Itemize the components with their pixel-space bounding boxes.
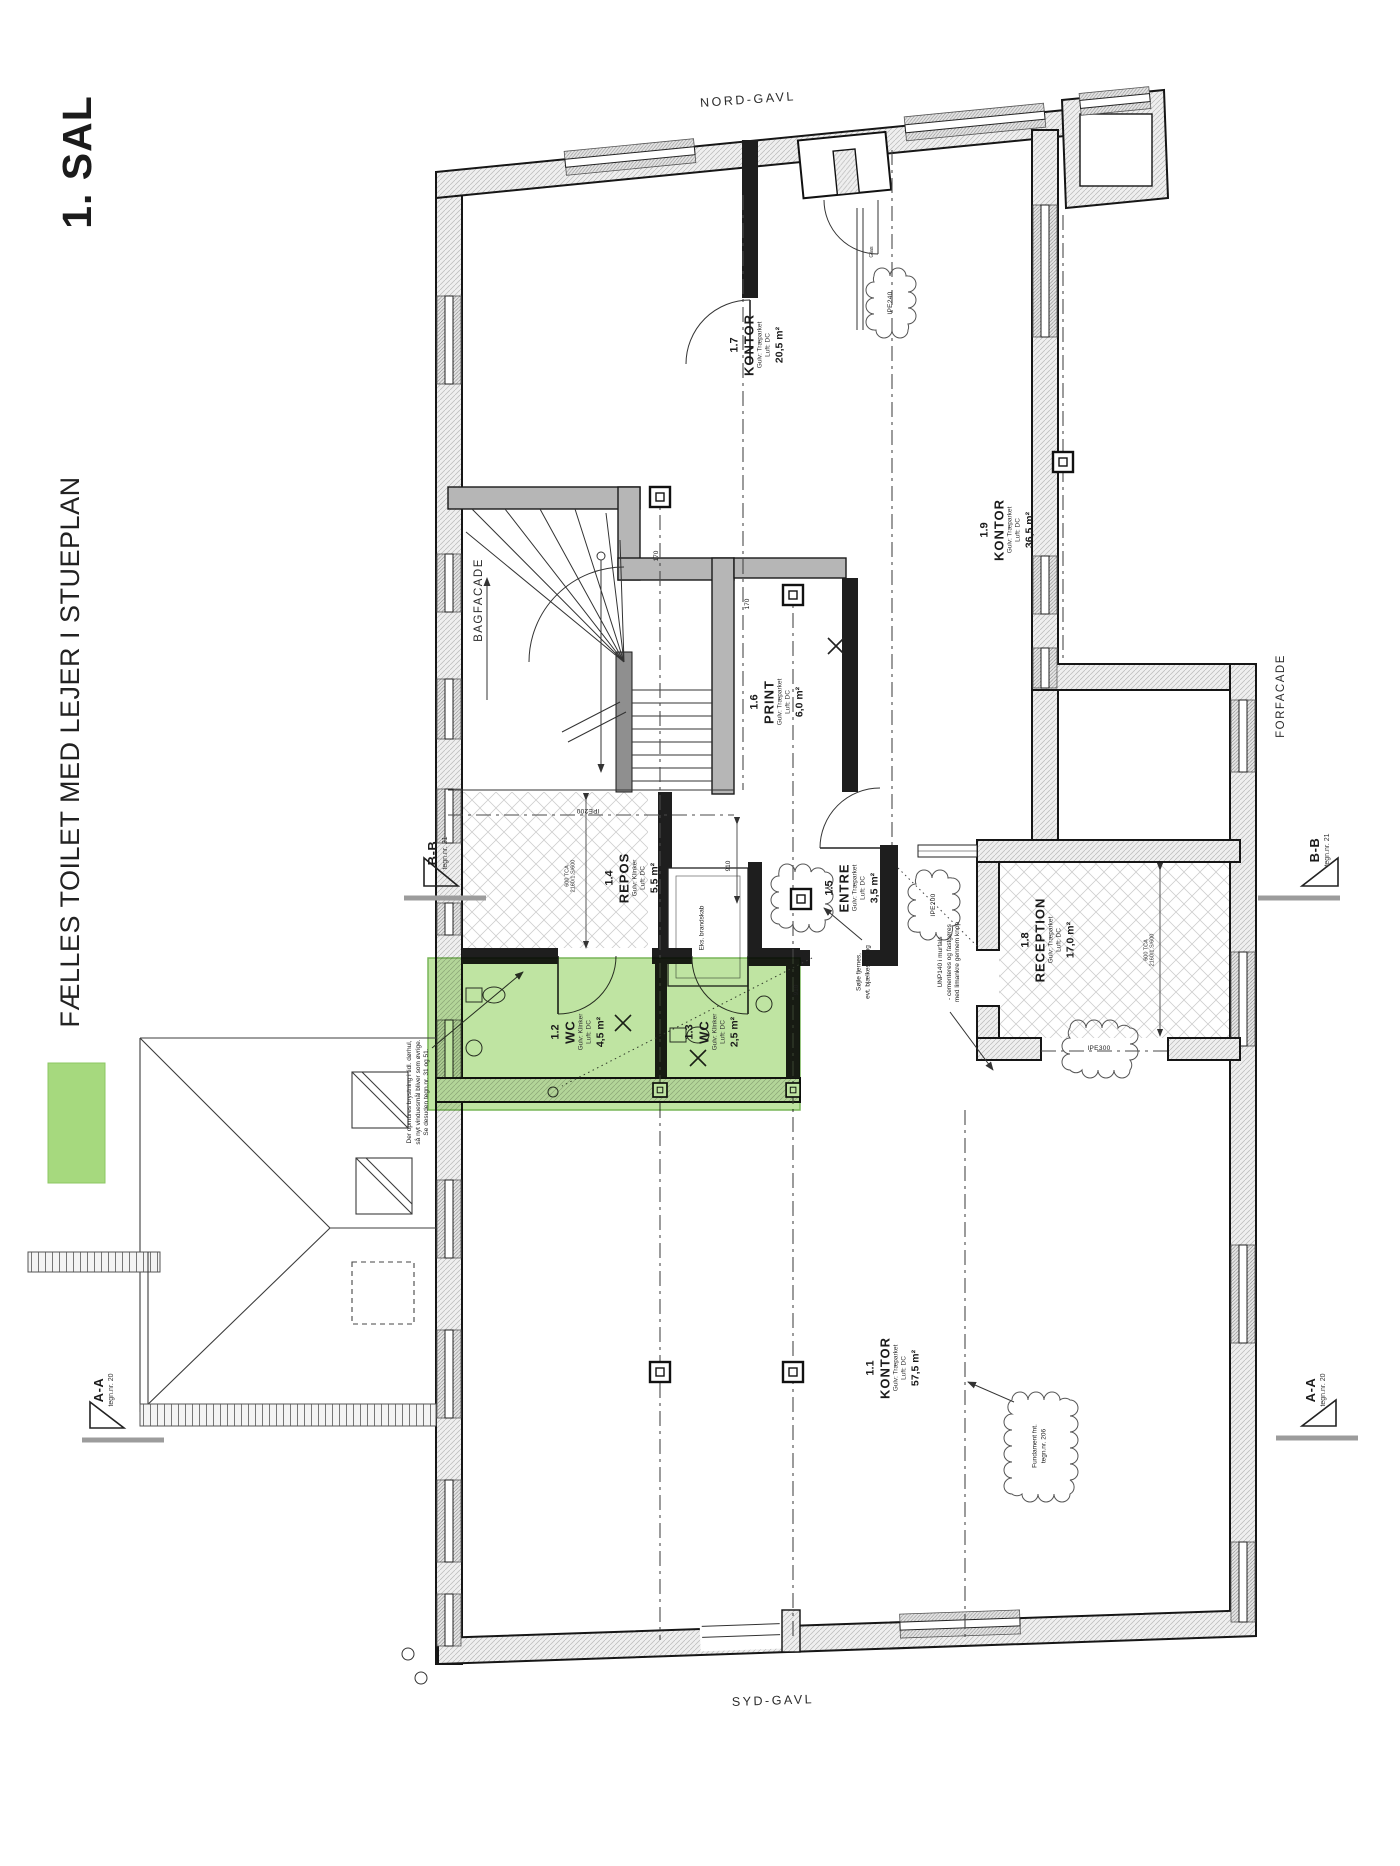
facade-label-south: SYD-GAVL — [732, 1692, 815, 1710]
note-glas: Glas — [869, 246, 875, 257]
north-entrance — [798, 132, 891, 330]
page-note-text: FÆLLES TOILET MED LEJER I STUEPLAN — [55, 476, 87, 1027]
note-brandskab: Eks. brandskab — [699, 906, 708, 951]
room-label-1-1: 1.1KONTOR Gulv: TræparketLuft: DC 57,5 m… — [865, 1337, 922, 1399]
room-label-1-4: 1.4REPOS Gulv: KlinkerLuft: DC 5,5 m² — [604, 853, 661, 904]
note-brystning: Der opmures brystning i tidl. dørhul, så… — [406, 1039, 432, 1144]
facade-label-back: BAGFACADE — [473, 558, 487, 642]
note-fundament: Fundament fnt. tegn.nr. 206 — [1031, 1424, 1048, 1468]
stair — [466, 509, 712, 781]
room-label-1-6: 1.6PRINT Gulv: TræparketLuft: DC 6,0 m² — [749, 679, 806, 726]
page-title: 1. SAL — [53, 95, 101, 229]
room-label-1-3: 1.3WC Gulv: KlinkerLuft: DC 2,5 m² — [684, 1014, 741, 1051]
room-label-1-7: 1.7KONTOR Gulv: TræparketLuft: DC 20,5 m… — [729, 314, 786, 376]
beam-tag-ipe300: IPE300 — [1087, 1045, 1110, 1053]
room-label-1-2: 1.2WC Gulv: KlinkerLuft: DC 4,5 m² — [550, 1014, 607, 1051]
page-title-text: 1. SAL — [53, 95, 101, 229]
room-label-1-9: 1.9KONTOR Gulv: TræparketLuft: DC 36,5 m… — [979, 499, 1036, 561]
section-marker-aa-left: A-A tegn.nr. 20 — [91, 1373, 117, 1406]
note-unp: UNP140 i murfals - cementeres og fastgør… — [937, 922, 963, 1002]
highlight-wc-zone — [428, 958, 800, 1110]
page-note: FÆLLES TOILET MED LEJER I STUEPLAN — [55, 476, 87, 1027]
section-marker-aa-right: A-A tegn.nr. 20 — [1303, 1373, 1329, 1406]
dim-910-entre: 910 — [725, 861, 733, 872]
dim-910-wc: 910 — [793, 985, 801, 996]
section-marker-bb-right: B-B tegn.nr. 21 — [1307, 833, 1333, 866]
beam-tag-ipe240: IPE240 — [887, 291, 895, 314]
floorplan-sheet: 1. SAL FÆLLES TOILET MED LEJER I STUEPLA… — [0, 0, 1400, 1866]
room-label-1-5: 1.5ENTRE Gulv: TræparketLuft: DC 3,5 m² — [824, 863, 881, 912]
dim-spec-repos: 600 TCA2160/1.S/600 — [565, 860, 578, 893]
beam-tag-ipe200-stair: IPE200 — [576, 806, 599, 814]
dim-170-stair-b: 170 — [744, 599, 752, 610]
facade-label-front: FORFACADE — [1275, 654, 1289, 738]
dim-spec-reception: 600 TCA2160/1.S/600 — [1144, 934, 1157, 967]
section-marker-bb-left: B-B tegn.nr. 21 — [425, 836, 451, 869]
dim-170-stair-a: 170 — [653, 551, 661, 562]
note-soejle: Søjle fjernes, evt. bjælkesamling — [855, 945, 872, 999]
room-label-1-8: 1.8RECEPTION Gulv: TræparketLuft: DC 17,… — [1020, 898, 1077, 983]
legend-swatch — [48, 1063, 105, 1183]
beam-tag-ipe200-entre: IPE200 — [930, 893, 938, 916]
